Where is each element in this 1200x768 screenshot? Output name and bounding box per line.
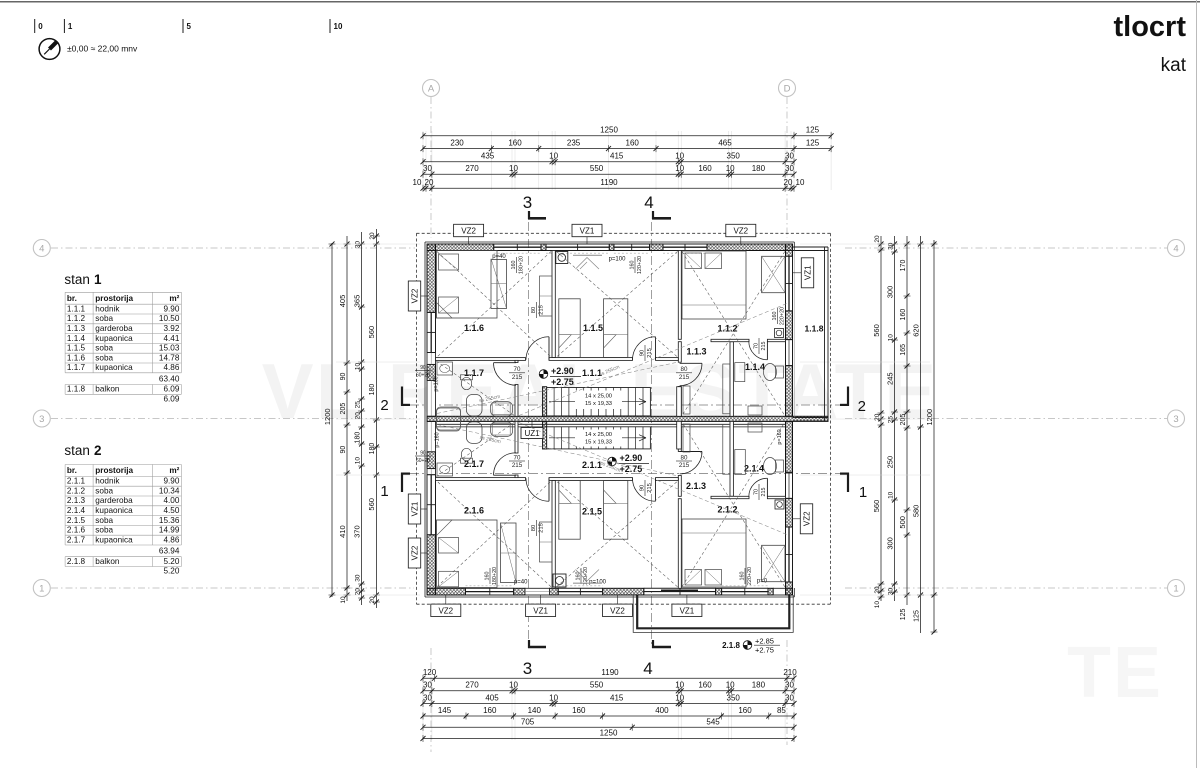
svg-text:125: 125 — [806, 138, 820, 147]
svg-text:garderoba: garderoba — [95, 324, 133, 333]
svg-text:p=160: p=160 — [777, 429, 783, 444]
svg-text:15 x 19,33: 15 x 19,33 — [585, 440, 612, 446]
svg-text:balkon: balkon — [95, 385, 120, 394]
svg-text:220+20: 220+20 — [747, 567, 753, 585]
svg-text:160: 160 — [572, 706, 586, 715]
svg-text:85: 85 — [777, 706, 786, 715]
svg-text:370: 370 — [352, 525, 361, 538]
svg-text:4.00: 4.00 — [163, 496, 179, 505]
svg-text:prostorija: prostorija — [95, 466, 133, 475]
svg-text:30: 30 — [354, 574, 361, 582]
svg-text:p=100: p=100 — [609, 257, 627, 263]
svg-text:1: 1 — [39, 583, 44, 594]
svg-text:1.1.4: 1.1.4 — [745, 362, 765, 372]
svg-text:180: 180 — [354, 432, 361, 444]
svg-text:120+20: 120+20 — [583, 567, 589, 585]
svg-text:215: 215 — [679, 374, 690, 381]
svg-text:20: 20 — [784, 178, 793, 187]
svg-text:14 x 25,00: 14 x 25,00 — [585, 394, 612, 400]
svg-text:VZ2: VZ2 — [610, 606, 625, 615]
svg-text:2.1.2: 2.1.2 — [717, 505, 737, 515]
svg-text:250: 250 — [885, 456, 894, 469]
svg-text:3.92: 3.92 — [163, 324, 179, 333]
svg-text:+2.75: +2.75 — [551, 377, 574, 387]
svg-text:90: 90 — [639, 485, 645, 491]
svg-text:90: 90 — [639, 350, 645, 356]
svg-text:705: 705 — [521, 718, 535, 727]
svg-text:415: 415 — [610, 693, 624, 702]
svg-text:10: 10 — [887, 334, 894, 342]
svg-text:±0,00 ≈ 22,00 mnv: ±0,00 ≈ 22,00 mnv — [67, 44, 138, 54]
svg-text:160: 160 — [508, 138, 522, 147]
svg-text:25: 25 — [354, 401, 361, 409]
svg-text:60+20: 60+20 — [416, 373, 430, 379]
svg-text:+2.85: +2.85 — [755, 637, 774, 646]
svg-text:3: 3 — [523, 193, 532, 212]
svg-text:14.78: 14.78 — [159, 353, 180, 362]
svg-text:2: 2 — [94, 443, 102, 458]
svg-text:415: 415 — [610, 151, 624, 160]
svg-text:550: 550 — [590, 681, 604, 690]
svg-text:3: 3 — [39, 414, 44, 425]
svg-text:9.90: 9.90 — [163, 304, 179, 313]
svg-text:9.90: 9.90 — [163, 477, 179, 486]
svg-text:14.99: 14.99 — [159, 526, 180, 535]
svg-text:270: 270 — [465, 164, 479, 173]
svg-text:4: 4 — [643, 659, 652, 678]
svg-text:5.20: 5.20 — [163, 557, 179, 566]
svg-text:1.1.7: 1.1.7 — [67, 363, 86, 372]
svg-text:10: 10 — [887, 491, 894, 499]
svg-text:20: 20 — [874, 586, 881, 594]
svg-text:4: 4 — [39, 243, 44, 254]
svg-text:2.1.2: 2.1.2 — [67, 486, 86, 495]
svg-text:prostorija: prostorija — [95, 294, 133, 303]
svg-text:180: 180 — [369, 443, 376, 455]
svg-text:465: 465 — [718, 138, 732, 147]
svg-text:20: 20 — [369, 596, 376, 604]
svg-text:1.1.2: 1.1.2 — [67, 314, 86, 323]
svg-text:0: 0 — [38, 22, 43, 31]
svg-text:hodnik: hodnik — [95, 477, 120, 486]
svg-text:160: 160 — [511, 261, 517, 270]
svg-text:1.1.3: 1.1.3 — [686, 347, 706, 357]
svg-text:350: 350 — [727, 151, 741, 160]
svg-text:1250: 1250 — [600, 729, 618, 738]
svg-text:VZ2: VZ2 — [411, 288, 420, 303]
svg-text:160: 160 — [698, 681, 712, 690]
svg-text:VZ1: VZ1 — [411, 501, 420, 516]
svg-text:1200: 1200 — [925, 409, 934, 426]
svg-text:2: 2 — [858, 398, 866, 415]
svg-text:1: 1 — [68, 22, 73, 31]
svg-text:10: 10 — [874, 601, 881, 609]
svg-text:VZ1: VZ1 — [580, 227, 595, 236]
svg-text:1: 1 — [94, 272, 102, 287]
svg-text:5.20: 5.20 — [163, 567, 179, 576]
svg-text:180: 180 — [752, 164, 766, 173]
svg-text:90: 90 — [420, 365, 426, 371]
svg-text:VZ2: VZ2 — [461, 227, 476, 236]
svg-text:10: 10 — [509, 681, 518, 690]
svg-text:4: 4 — [1173, 243, 1178, 254]
svg-text:140: 140 — [528, 706, 542, 715]
svg-text:4.86: 4.86 — [163, 535, 179, 544]
svg-text:15.36: 15.36 — [159, 516, 180, 525]
svg-text:1.1.2: 1.1.2 — [717, 324, 737, 334]
svg-text:270: 270 — [465, 681, 479, 690]
svg-text:160: 160 — [484, 572, 490, 581]
svg-text:30: 30 — [785, 681, 794, 690]
svg-text:10: 10 — [340, 596, 347, 604]
svg-text:160: 160 — [698, 164, 712, 173]
svg-text:410: 410 — [338, 525, 347, 538]
svg-text:25: 25 — [887, 416, 894, 424]
svg-text:2.1.4: 2.1.4 — [67, 506, 86, 515]
svg-text:205: 205 — [900, 414, 907, 426]
svg-text:560: 560 — [872, 324, 881, 337]
svg-text:VZ2: VZ2 — [733, 227, 748, 236]
svg-text:2.1.5: 2.1.5 — [67, 516, 86, 525]
svg-text:p=160: p=160 — [435, 432, 441, 447]
svg-text:1190: 1190 — [600, 178, 618, 187]
svg-text:120+20: 120+20 — [637, 256, 643, 274]
svg-text:soba: soba — [95, 486, 113, 495]
svg-text:63.94: 63.94 — [159, 547, 180, 556]
svg-text:125: 125 — [806, 126, 820, 135]
svg-text:215: 215 — [512, 374, 523, 381]
svg-text:3: 3 — [1173, 414, 1178, 425]
svg-text:10: 10 — [675, 151, 684, 160]
svg-text:VZ1: VZ1 — [680, 606, 695, 615]
svg-text:20: 20 — [354, 412, 361, 420]
svg-text:10: 10 — [675, 164, 684, 173]
svg-text:125: 125 — [913, 610, 920, 622]
svg-text:70: 70 — [514, 366, 521, 373]
svg-text:tlocrt: tlocrt — [1114, 11, 1187, 43]
svg-text:30: 30 — [887, 588, 894, 596]
svg-text:30: 30 — [423, 693, 432, 702]
svg-text:500: 500 — [898, 516, 907, 529]
svg-text:145: 145 — [438, 706, 452, 715]
svg-text:30: 30 — [423, 164, 432, 173]
svg-text:220+20: 220+20 — [780, 307, 786, 325]
svg-text:10: 10 — [413, 178, 422, 187]
svg-text:20: 20 — [874, 235, 881, 243]
svg-text:30: 30 — [785, 164, 794, 173]
svg-text:4.50: 4.50 — [163, 506, 179, 515]
svg-text:215: 215 — [761, 342, 767, 351]
svg-text:10: 10 — [726, 164, 735, 173]
svg-text:30: 30 — [423, 681, 432, 690]
svg-text:10: 10 — [549, 693, 558, 702]
svg-text:1.1.7: 1.1.7 — [464, 368, 484, 378]
svg-text:4: 4 — [644, 193, 653, 212]
svg-text:10: 10 — [334, 22, 343, 31]
svg-text:VZ1: VZ1 — [804, 265, 813, 280]
svg-text:160: 160 — [739, 572, 745, 581]
svg-text:4.86: 4.86 — [163, 363, 179, 372]
svg-text:10: 10 — [726, 681, 735, 690]
svg-text:180+20: 180+20 — [519, 256, 525, 274]
svg-text:300: 300 — [885, 537, 894, 550]
svg-text:210: 210 — [783, 668, 797, 677]
svg-text:D: D — [784, 83, 791, 94]
svg-text:180: 180 — [369, 384, 376, 396]
svg-text:m²: m² — [169, 294, 179, 303]
svg-text:365: 365 — [352, 295, 361, 308]
svg-text:245: 245 — [885, 372, 894, 385]
svg-text:15 x 19,33: 15 x 19,33 — [585, 401, 612, 407]
svg-text:560: 560 — [872, 500, 881, 513]
svg-text:2.1.3: 2.1.3 — [67, 496, 86, 505]
svg-text:TE: TE — [1067, 633, 1163, 713]
svg-text:1200: 1200 — [323, 408, 332, 425]
svg-text:2.1.5: 2.1.5 — [582, 507, 602, 517]
svg-text:545: 545 — [706, 718, 720, 727]
svg-text:125: 125 — [900, 608, 907, 620]
svg-text:1: 1 — [859, 484, 867, 501]
svg-text:kat: kat — [1161, 55, 1187, 76]
svg-text:kupaonica: kupaonica — [95, 535, 133, 544]
svg-text:160: 160 — [629, 261, 635, 270]
svg-text:balkon: balkon — [95, 557, 120, 566]
svg-text:560: 560 — [367, 326, 376, 339]
svg-text:120: 120 — [423, 668, 437, 677]
svg-text:70: 70 — [753, 343, 759, 349]
svg-text:A: A — [428, 83, 435, 94]
svg-text:80: 80 — [681, 454, 688, 461]
svg-text:160: 160 — [772, 312, 778, 321]
svg-text:2: 2 — [380, 397, 388, 414]
svg-text:580: 580 — [911, 505, 920, 518]
svg-text:30: 30 — [887, 242, 894, 250]
svg-text:3: 3 — [523, 659, 532, 678]
svg-text:14 x 25,00: 14 x 25,00 — [585, 432, 612, 438]
svg-text:5: 5 — [187, 22, 192, 31]
svg-text:1.1.8: 1.1.8 — [805, 324, 824, 334]
svg-text:10: 10 — [354, 457, 361, 465]
svg-text:soba: soba — [95, 516, 113, 525]
svg-text:garderoba: garderoba — [95, 496, 133, 505]
svg-text:+2.90: +2.90 — [551, 366, 574, 376]
svg-text:230: 230 — [450, 138, 464, 147]
svg-text:br.: br. — [67, 294, 77, 303]
svg-text:10: 10 — [675, 693, 684, 702]
svg-text:165: 165 — [900, 344, 907, 356]
svg-text:63.40: 63.40 — [159, 374, 180, 383]
svg-text:10: 10 — [354, 363, 361, 371]
svg-text:80: 80 — [531, 307, 537, 313]
svg-text:10: 10 — [509, 164, 518, 173]
svg-text:70: 70 — [514, 454, 521, 461]
svg-text:60+20: 60+20 — [416, 458, 430, 464]
svg-text:90: 90 — [340, 373, 347, 381]
svg-text:2.1.3: 2.1.3 — [686, 481, 706, 491]
svg-text:6.09: 6.09 — [163, 385, 179, 394]
svg-text:10: 10 — [796, 178, 805, 187]
svg-text:br.: br. — [67, 466, 77, 475]
svg-text:30: 30 — [785, 151, 794, 160]
svg-text:+2.75: +2.75 — [620, 464, 643, 474]
svg-text:1: 1 — [380, 483, 388, 500]
svg-text:1250: 1250 — [600, 126, 618, 135]
svg-text:1: 1 — [1173, 583, 1178, 594]
svg-text:350: 350 — [727, 693, 741, 702]
svg-text:1.1.6: 1.1.6 — [464, 323, 484, 333]
svg-text:235: 235 — [567, 138, 581, 147]
svg-text:80: 80 — [531, 525, 537, 531]
svg-text:VZ2: VZ2 — [438, 606, 453, 615]
svg-text:90: 90 — [420, 450, 426, 456]
svg-text:soba: soba — [95, 526, 113, 535]
svg-text:soba: soba — [95, 344, 113, 353]
svg-text:435: 435 — [481, 151, 495, 160]
svg-text:VZ2: VZ2 — [411, 545, 420, 560]
svg-text:6.09: 6.09 — [163, 394, 179, 403]
svg-text:160: 160 — [483, 706, 497, 715]
svg-text:30: 30 — [785, 693, 794, 702]
svg-text:215: 215 — [647, 483, 653, 493]
svg-text:kupaonica: kupaonica — [95, 363, 133, 372]
svg-text:215: 215 — [761, 488, 767, 497]
svg-text:560: 560 — [367, 498, 376, 511]
svg-text:10.50: 10.50 — [159, 314, 180, 323]
svg-text:1.1.8: 1.1.8 — [67, 385, 86, 394]
svg-text:20: 20 — [369, 232, 376, 240]
svg-text:p=160: p=160 — [434, 376, 440, 391]
svg-text:1.1.4: 1.1.4 — [67, 334, 86, 343]
svg-text:170: 170 — [900, 260, 907, 272]
svg-text:soba: soba — [95, 314, 113, 323]
svg-text:300: 300 — [885, 286, 894, 299]
svg-text:hodnik: hodnik — [95, 304, 120, 313]
svg-text:soba: soba — [95, 353, 113, 362]
svg-text:2.1.8: 2.1.8 — [67, 557, 86, 566]
svg-text:kupaonica: kupaonica — [95, 334, 133, 343]
svg-text:20: 20 — [354, 588, 361, 596]
svg-text:1.1.3: 1.1.3 — [67, 324, 86, 333]
svg-text:2.1.6: 2.1.6 — [464, 506, 484, 516]
svg-text:kupaonica: kupaonica — [95, 506, 133, 515]
svg-text:VZ1: VZ1 — [533, 606, 548, 615]
svg-text:160: 160 — [626, 138, 640, 147]
svg-text:+2.75: +2.75 — [755, 646, 774, 655]
svg-text:405: 405 — [338, 295, 347, 308]
svg-text:205: 205 — [340, 403, 347, 415]
svg-text:160: 160 — [900, 309, 907, 321]
svg-text:2.1.7: 2.1.7 — [67, 535, 86, 544]
svg-text:215: 215 — [647, 348, 653, 358]
svg-text:1190: 1190 — [601, 668, 619, 677]
svg-text:4.41: 4.41 — [163, 334, 179, 343]
svg-text:10: 10 — [549, 151, 558, 160]
svg-text:2.1.8: 2.1.8 — [722, 641, 740, 650]
svg-text:80: 80 — [681, 366, 688, 373]
svg-text:2.1.1: 2.1.1 — [67, 477, 86, 486]
svg-text:1.1.1: 1.1.1 — [67, 304, 86, 313]
svg-text:400: 400 — [655, 706, 669, 715]
svg-text:stan: stan — [64, 443, 90, 458]
svg-text:p=100: p=100 — [589, 579, 607, 585]
svg-text:+2.90: +2.90 — [620, 453, 643, 463]
svg-text:2.1.6: 2.1.6 — [67, 526, 86, 535]
svg-text:30: 30 — [354, 241, 361, 249]
svg-text:15.03: 15.03 — [159, 344, 180, 353]
svg-text:620: 620 — [911, 324, 920, 337]
svg-text:VZ2: VZ2 — [803, 511, 812, 526]
svg-text:10.34: 10.34 — [159, 486, 180, 495]
svg-text:stan: stan — [64, 272, 90, 287]
svg-text:405: 405 — [485, 693, 499, 702]
svg-text:20: 20 — [874, 413, 881, 421]
svg-text:m²: m² — [169, 466, 179, 475]
svg-text:90: 90 — [340, 446, 347, 454]
svg-text:180: 180 — [752, 681, 766, 690]
svg-text:160: 160 — [738, 706, 752, 715]
svg-text:550: 550 — [590, 164, 604, 173]
svg-text:10: 10 — [675, 681, 684, 690]
svg-text:70: 70 — [753, 489, 759, 495]
svg-text:1.1.6: 1.1.6 — [67, 353, 86, 362]
svg-text:215: 215 — [679, 462, 690, 469]
svg-text:1.1.5: 1.1.5 — [67, 344, 86, 353]
svg-text:215: 215 — [512, 462, 523, 469]
svg-text:20: 20 — [425, 178, 434, 187]
